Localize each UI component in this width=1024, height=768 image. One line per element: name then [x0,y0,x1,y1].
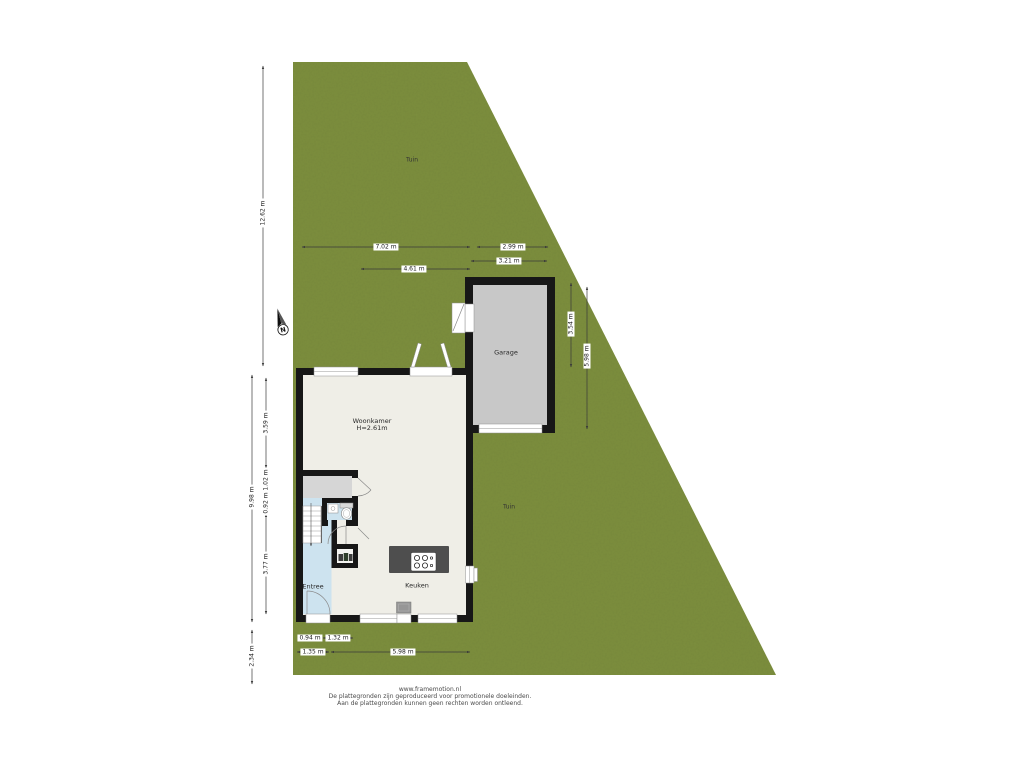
toilet-icon [340,503,353,519]
footer-line3: Aan de plattegronden kunnen geen rechten… [329,700,532,707]
footer-line2: De plattegronden zijn geproduceerd voor … [329,693,532,700]
north-arrow: N [272,307,289,336]
dimension-label: 3.59 m [263,410,270,435]
footer-disclaimer: www.framemotion.nl De plattegronden zijn… [329,686,532,707]
garage-door [479,424,542,433]
dimension-label: 9.98 m [249,484,256,509]
footer-url: www.framemotion.nl [329,686,532,693]
living-room-label: Woonkamer H=2.61m [353,418,392,432]
dimension-label: 2.34 m [249,643,256,668]
garden-label-top: Tuin [406,157,418,164]
dimension-label: 2.99 m [500,244,525,251]
hob-icon [411,553,436,572]
kitchen-window-right [418,614,457,623]
dimension-label: 3.77 m [263,551,270,576]
dimension-label: 1.35 m [300,649,325,656]
floorplan-canvas: N [0,0,1024,768]
dimension-label: 12.62 m [260,199,267,228]
kitchen-side-window [466,566,478,583]
dimension-label: 7.02 m [373,244,398,251]
kitchen-window-left [360,614,397,623]
garage-label: Garage [494,350,518,357]
dimension-label: 0.92 m [263,490,270,515]
dimension-label: 3.54 m [568,311,575,336]
dimension-label: 1.32 m [325,635,350,642]
kitchen-island [389,546,449,573]
dimension-label: 3.21 m [496,258,521,265]
dimension-label: 1.02 m [263,467,270,492]
stair-landing-floor [303,476,352,498]
living-room-height: H=2.61m [353,425,392,432]
floorplan-page: N Tuin Tuin Woonkamer H=2.61m Gar [0,0,1024,768]
dimension-label: 5.98 m [584,343,591,368]
garden-label-side: Tuin [503,504,515,511]
back-door-opening [397,614,411,623]
garage-side-door [452,303,474,333]
sink-icon [328,504,338,513]
dimension-label: 5.98 m [390,649,415,656]
dimension-label: 0.94 m [297,635,322,642]
doormat [397,602,412,613]
dimension-label: 4.61 m [401,266,426,273]
stairs [303,503,322,546]
entree-label: Entree [302,584,323,591]
kitchen-label: Keuken [405,583,429,590]
living-room-window [314,367,358,376]
